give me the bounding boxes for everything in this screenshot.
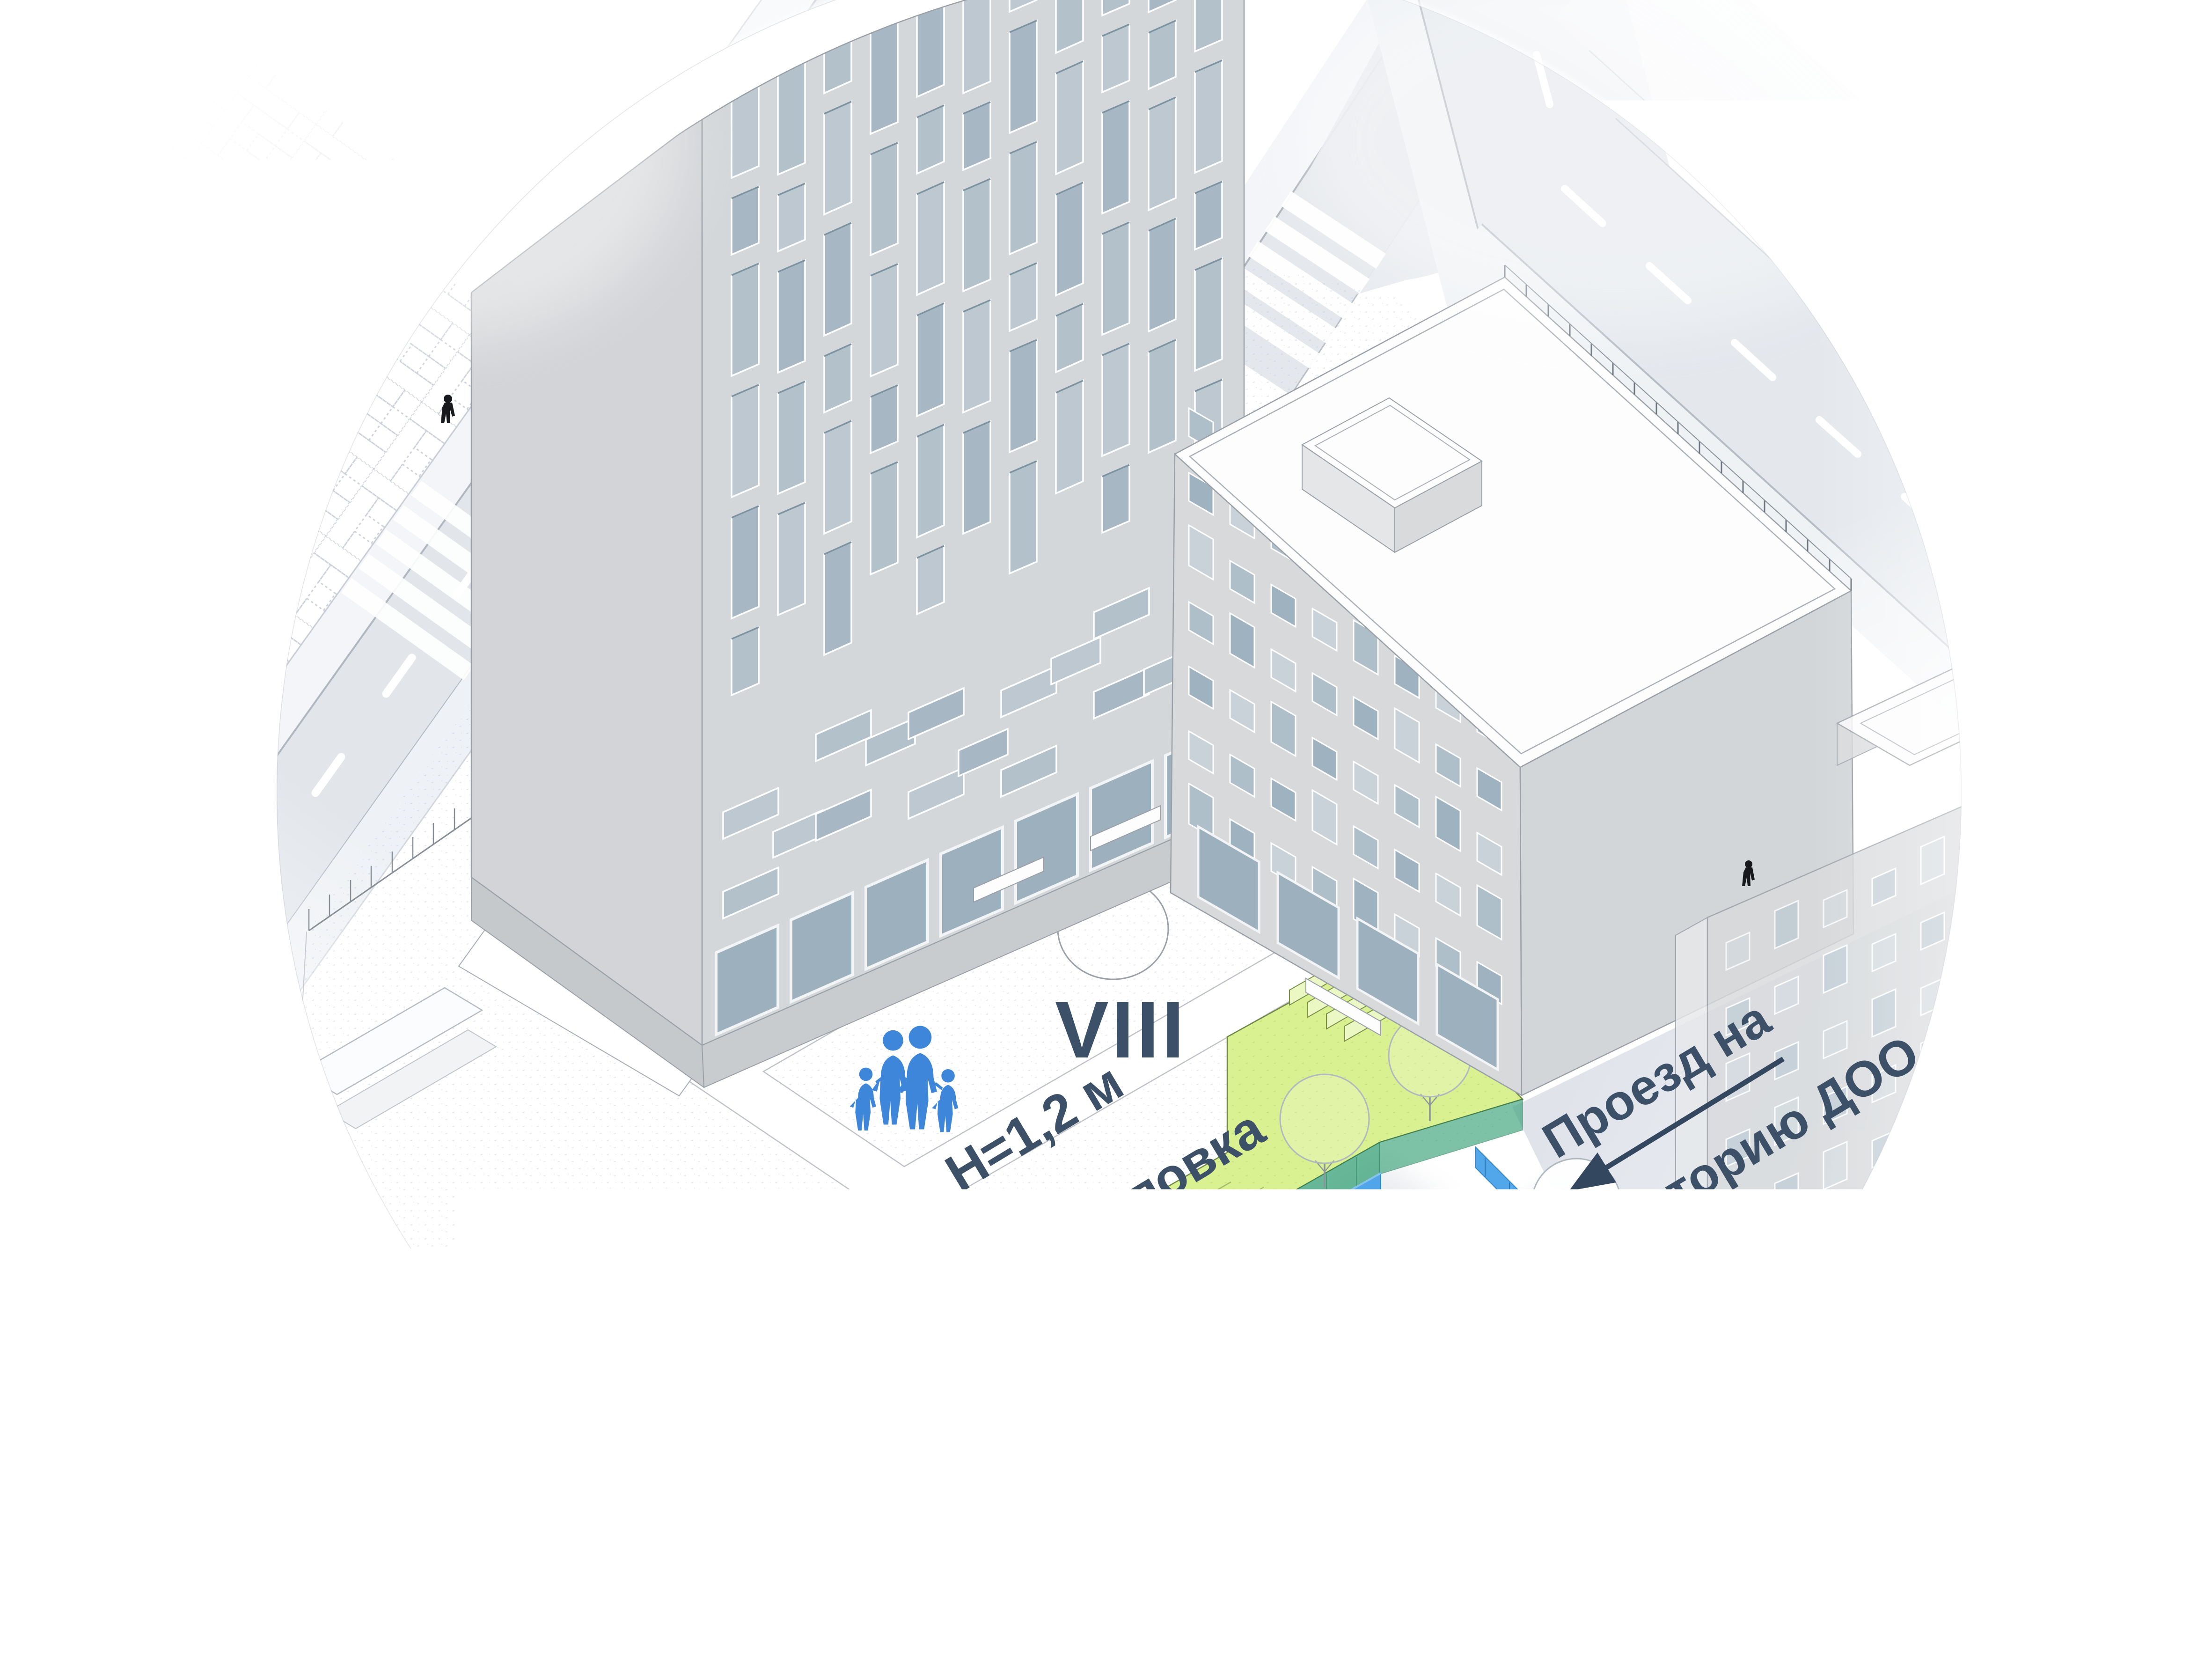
svg-text:VIII: VIII bbox=[1055, 985, 1187, 1075]
